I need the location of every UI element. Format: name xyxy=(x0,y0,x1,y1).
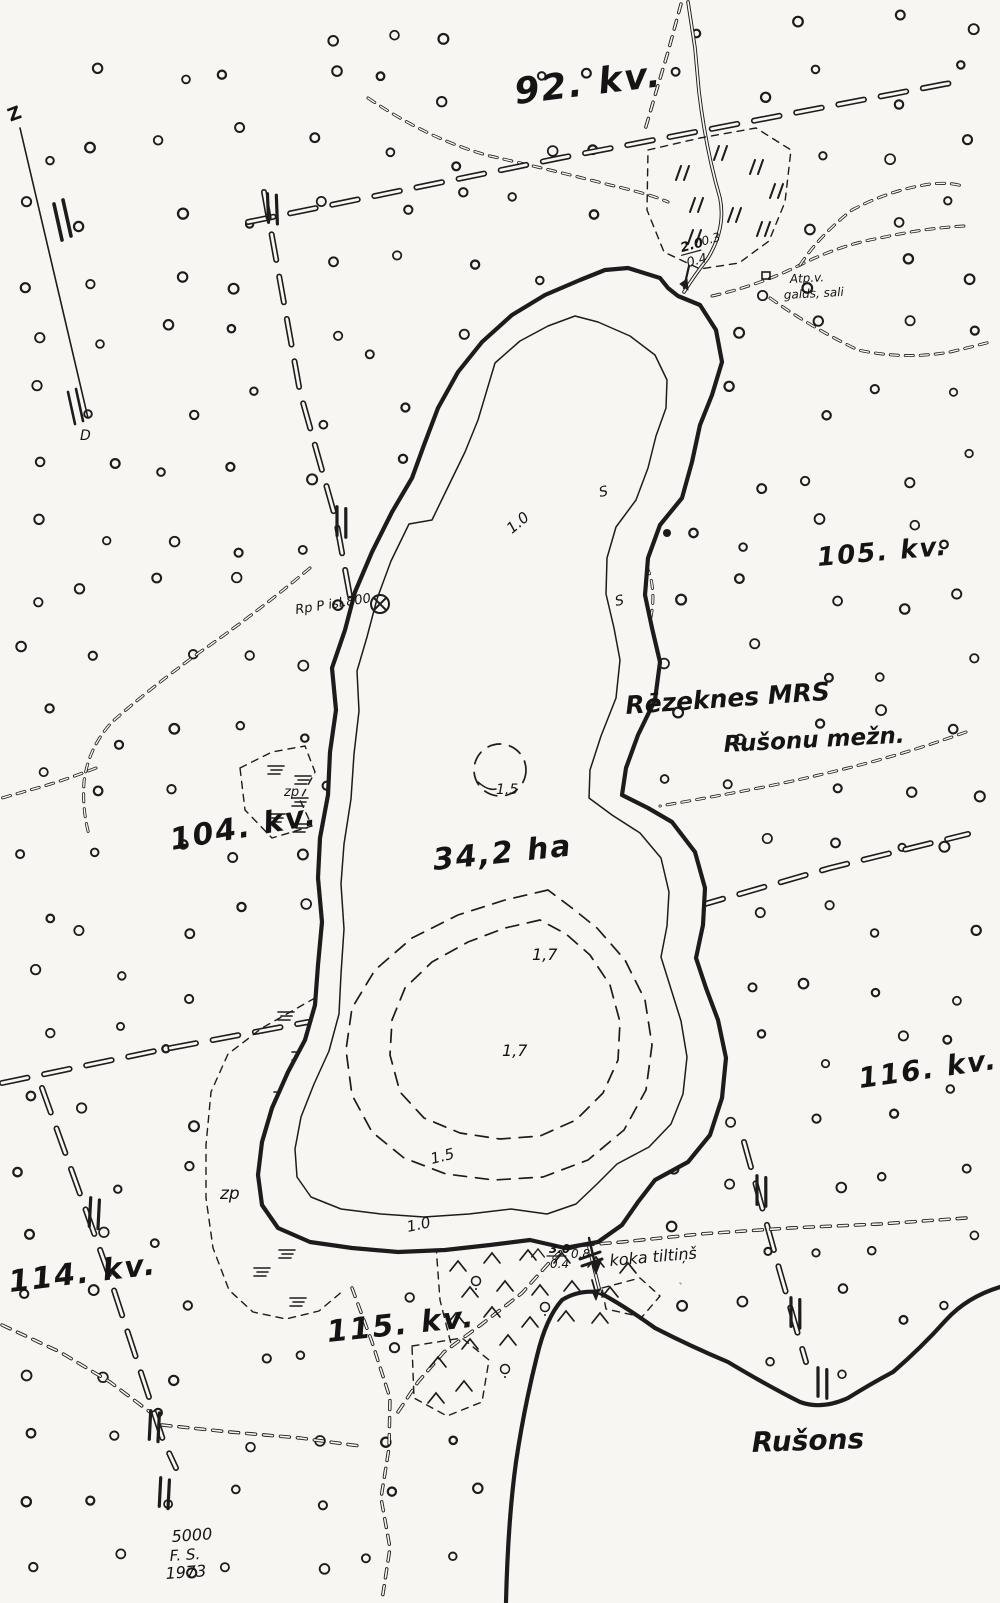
imprint-year: 1973 xyxy=(165,1561,207,1583)
scanned-forest-lake-map: Z D 92. kv. 104. kv. 105. kv. 114. kv. 1… xyxy=(0,0,1000,1603)
bridge-extra: 0.8 xyxy=(571,1247,590,1261)
bridge-width: 3.0 xyxy=(549,1242,570,1256)
rest-place-label-1: Atp.v. xyxy=(788,270,824,286)
south-label: D xyxy=(80,428,91,444)
map-canvas: Z D 92. kv. 104. kv. 105. kv. 114. kv. 1… xyxy=(0,0,1000,1603)
depth-1_7-upper-label: 1,7 xyxy=(532,945,558,964)
contour-1_5-circle-label: 1.5 xyxy=(496,782,518,798)
marsh-zp-lower-label: zp xyxy=(219,1184,240,1204)
depth-1_7-lower-label: 1,7 xyxy=(502,1041,528,1060)
marsh-zp-upper-label: zp xyxy=(283,785,299,800)
bridge-depth: 0.4 xyxy=(550,1257,569,1271)
rusons-lake-label: Rušons xyxy=(751,1422,865,1459)
spring-dot xyxy=(663,529,671,537)
imprint-scale: 5000 xyxy=(171,1524,213,1546)
